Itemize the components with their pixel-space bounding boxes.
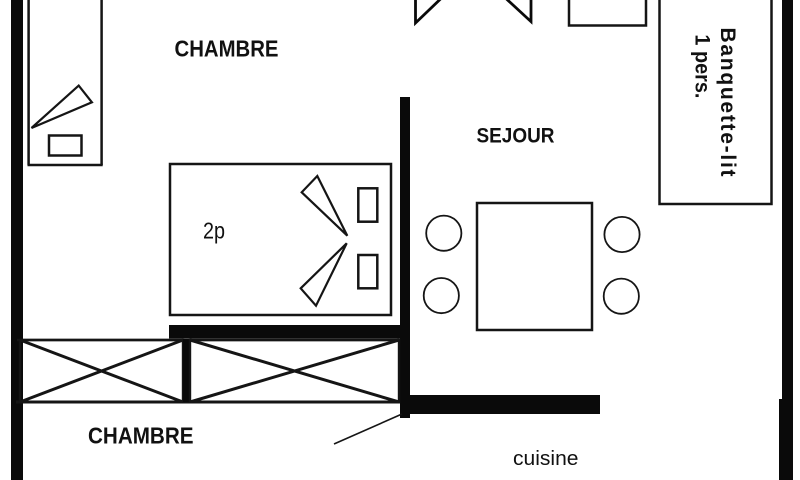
svg-text:1 pers.: 1 pers. xyxy=(691,34,714,98)
svg-text:2p: 2p xyxy=(203,218,225,244)
svg-text:SEJOUR: SEJOUR xyxy=(477,123,555,147)
svg-text:CHAMBRE: CHAMBRE xyxy=(175,36,279,62)
svg-text:Banquette-lit: Banquette-lit xyxy=(716,28,739,177)
svg-text:CHAMBRE: CHAMBRE xyxy=(88,423,194,449)
svg-text:cuisine: cuisine xyxy=(513,448,579,470)
